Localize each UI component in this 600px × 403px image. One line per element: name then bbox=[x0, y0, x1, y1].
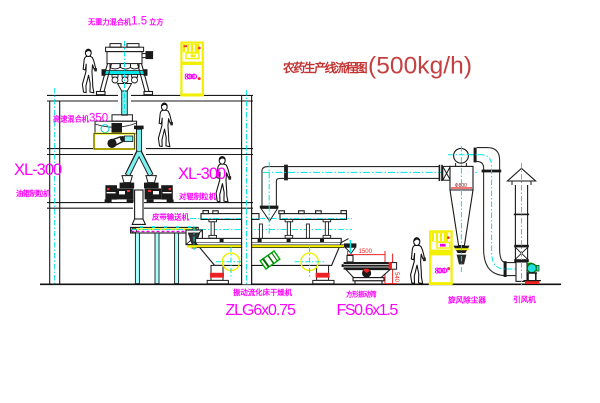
svg-text:高速混合机350: 高速混合机350 bbox=[53, 113, 108, 125]
svg-text:540: 540 bbox=[393, 272, 399, 283]
svg-text:XL-300: XL-300 bbox=[178, 165, 226, 183]
svg-text:XL-300: XL-300 bbox=[14, 161, 62, 179]
svg-text:1500: 1500 bbox=[359, 249, 373, 255]
svg-text:旋风除尘器: 旋风除尘器 bbox=[447, 295, 486, 305]
svg-text:ZLG6x0.75: ZLG6x0.75 bbox=[226, 302, 296, 319]
svg-text:8ΦΦ: 8ΦΦ bbox=[435, 265, 448, 275]
svg-text:皮带输送机: 皮带输送机 bbox=[151, 213, 190, 222]
svg-text:方形振动筛: 方形振动筛 bbox=[346, 290, 377, 299]
svg-text:8ΦΦ: 8ΦΦ bbox=[184, 71, 197, 81]
svg-text:油辊制粒机: 油辊制粒机 bbox=[16, 189, 51, 198]
svg-text:(500kg/h): (500kg/h) bbox=[368, 53, 472, 80]
svg-text:无重力混合机1.5 立方: 无重力混合机1.5 立方 bbox=[87, 16, 164, 28]
svg-text:FS0.6x1.5: FS0.6x1.5 bbox=[337, 302, 399, 319]
svg-text:农药生产线流程图: 农药生产线流程图 bbox=[282, 61, 368, 75]
svg-text:对辊制粒机: 对辊制粒机 bbox=[179, 192, 217, 201]
svg-text:振动流化床干燥机: 振动流化床干燥机 bbox=[233, 288, 293, 297]
svg-text:引风机: 引风机 bbox=[513, 294, 536, 304]
